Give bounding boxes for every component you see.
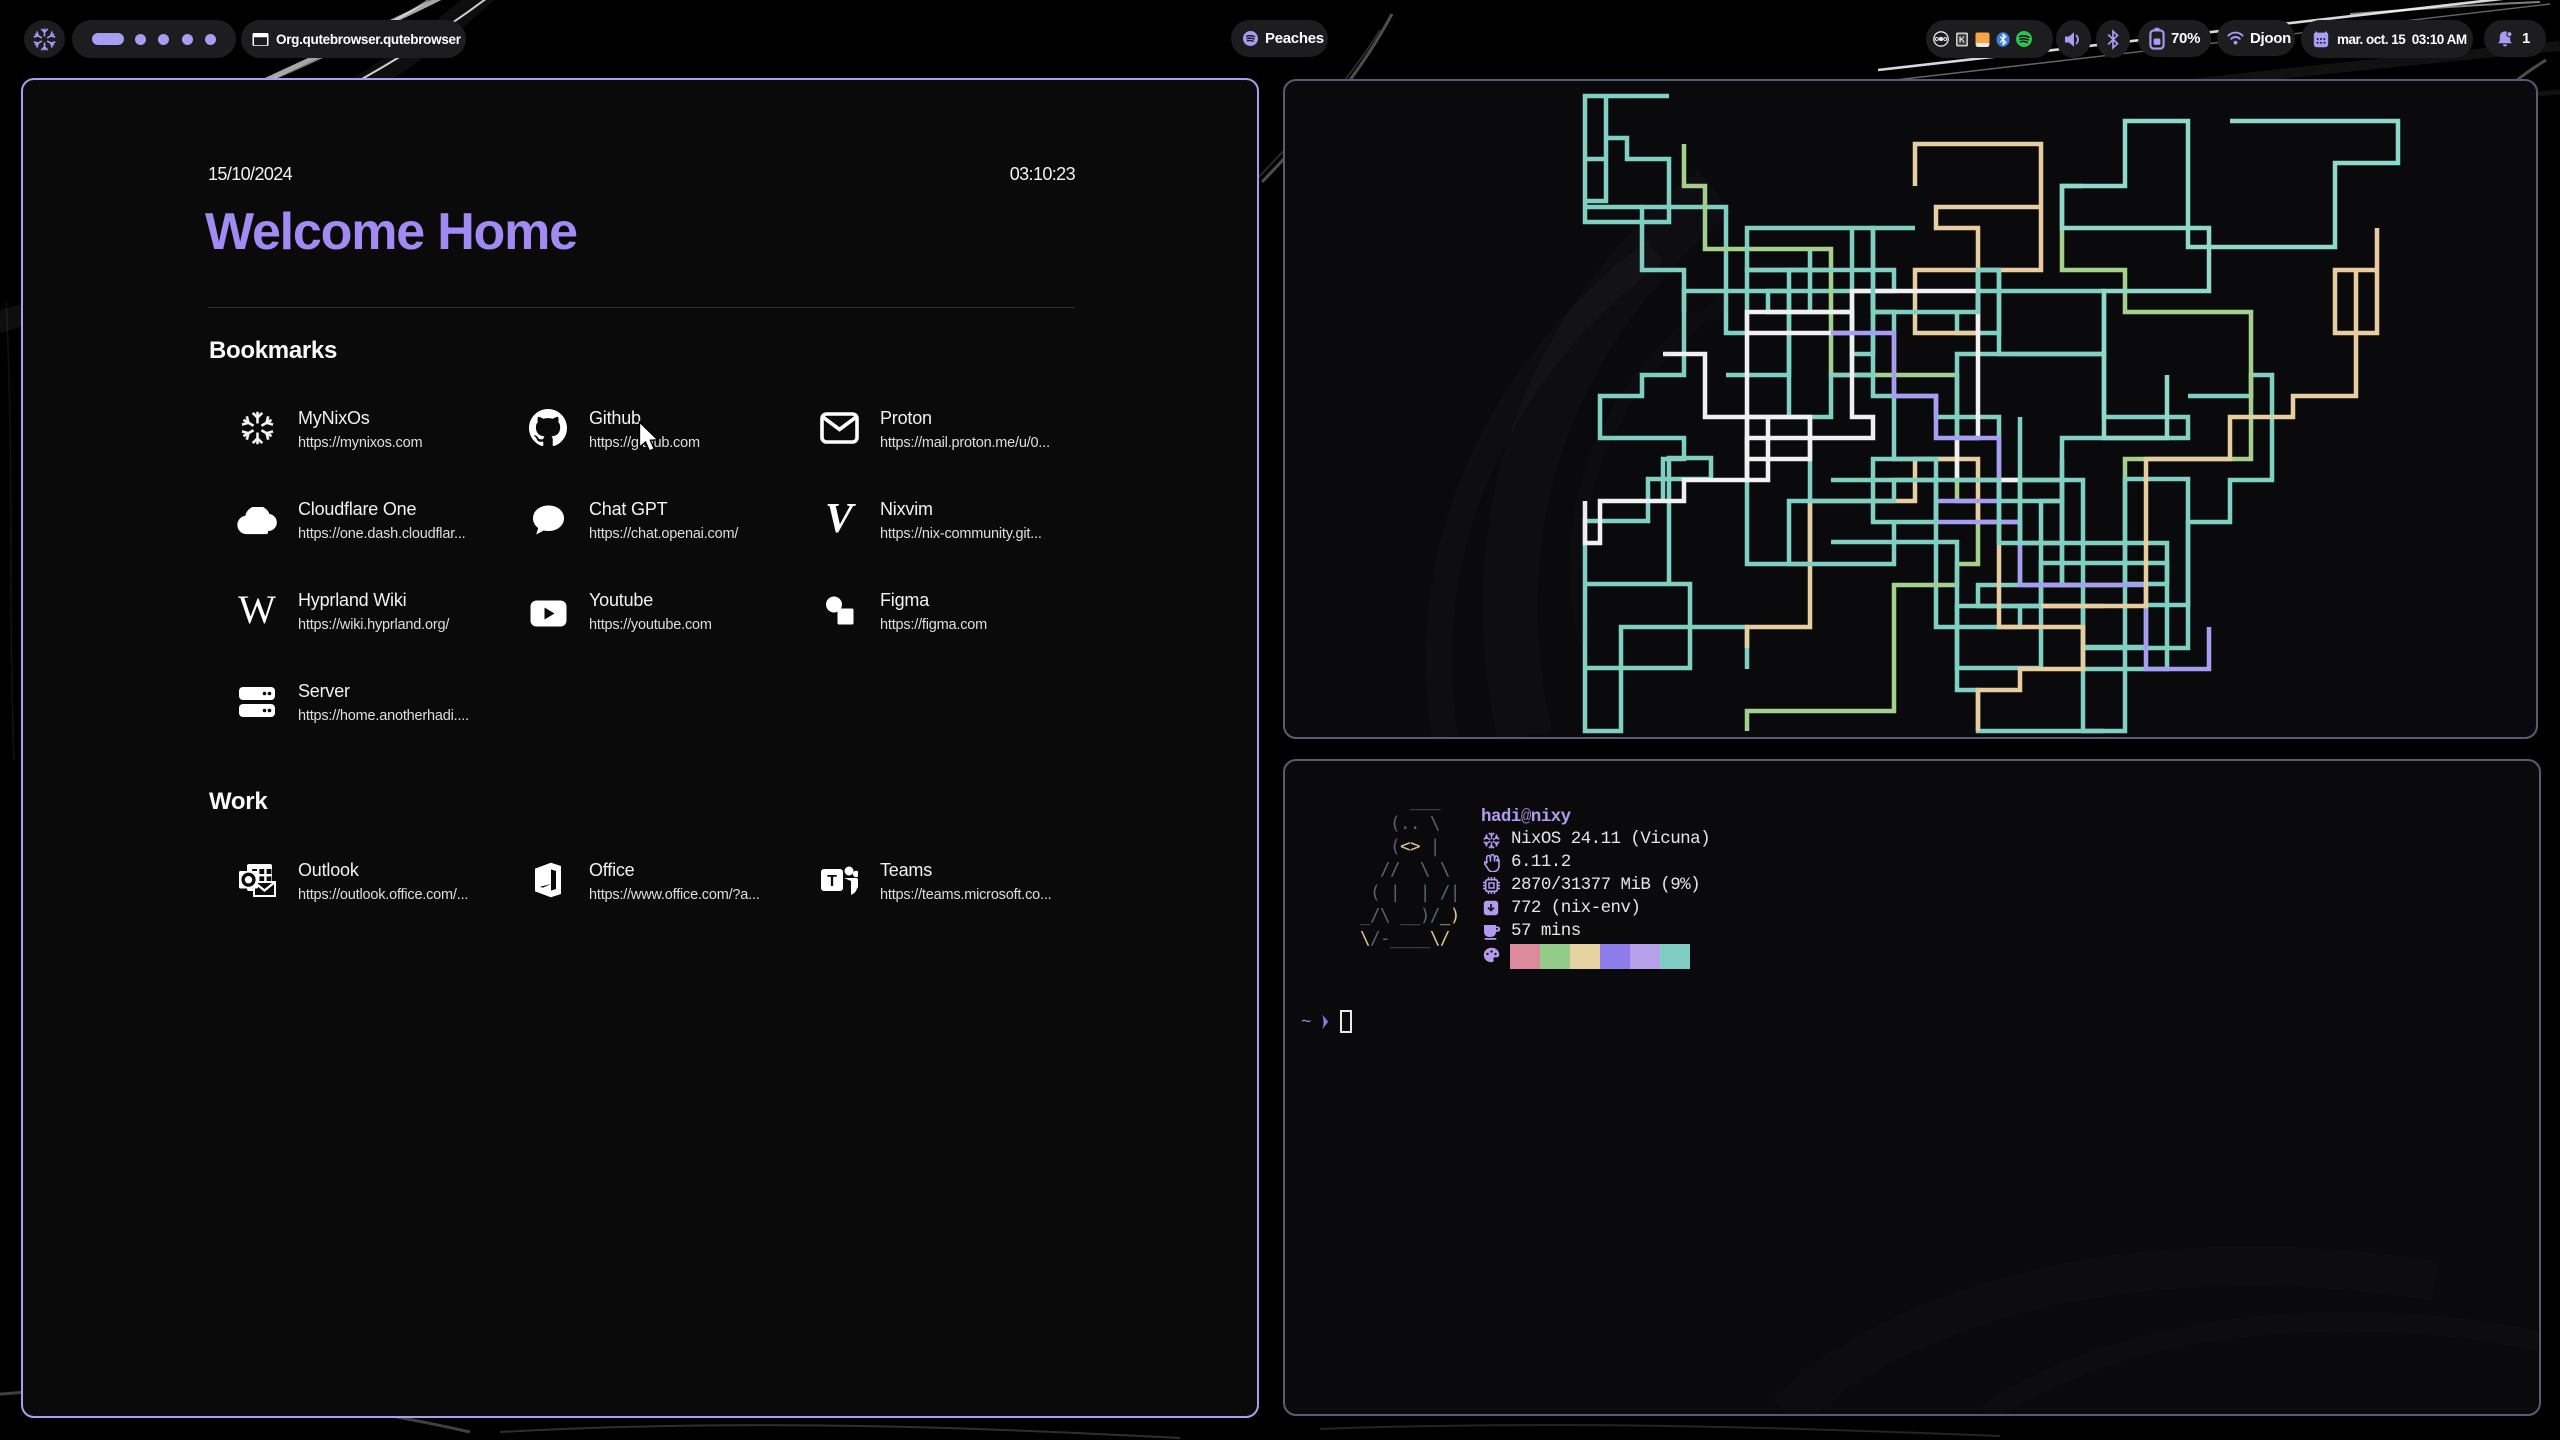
svg-text:T: T (827, 873, 837, 890)
svg-text:K: K (1959, 34, 1966, 44)
